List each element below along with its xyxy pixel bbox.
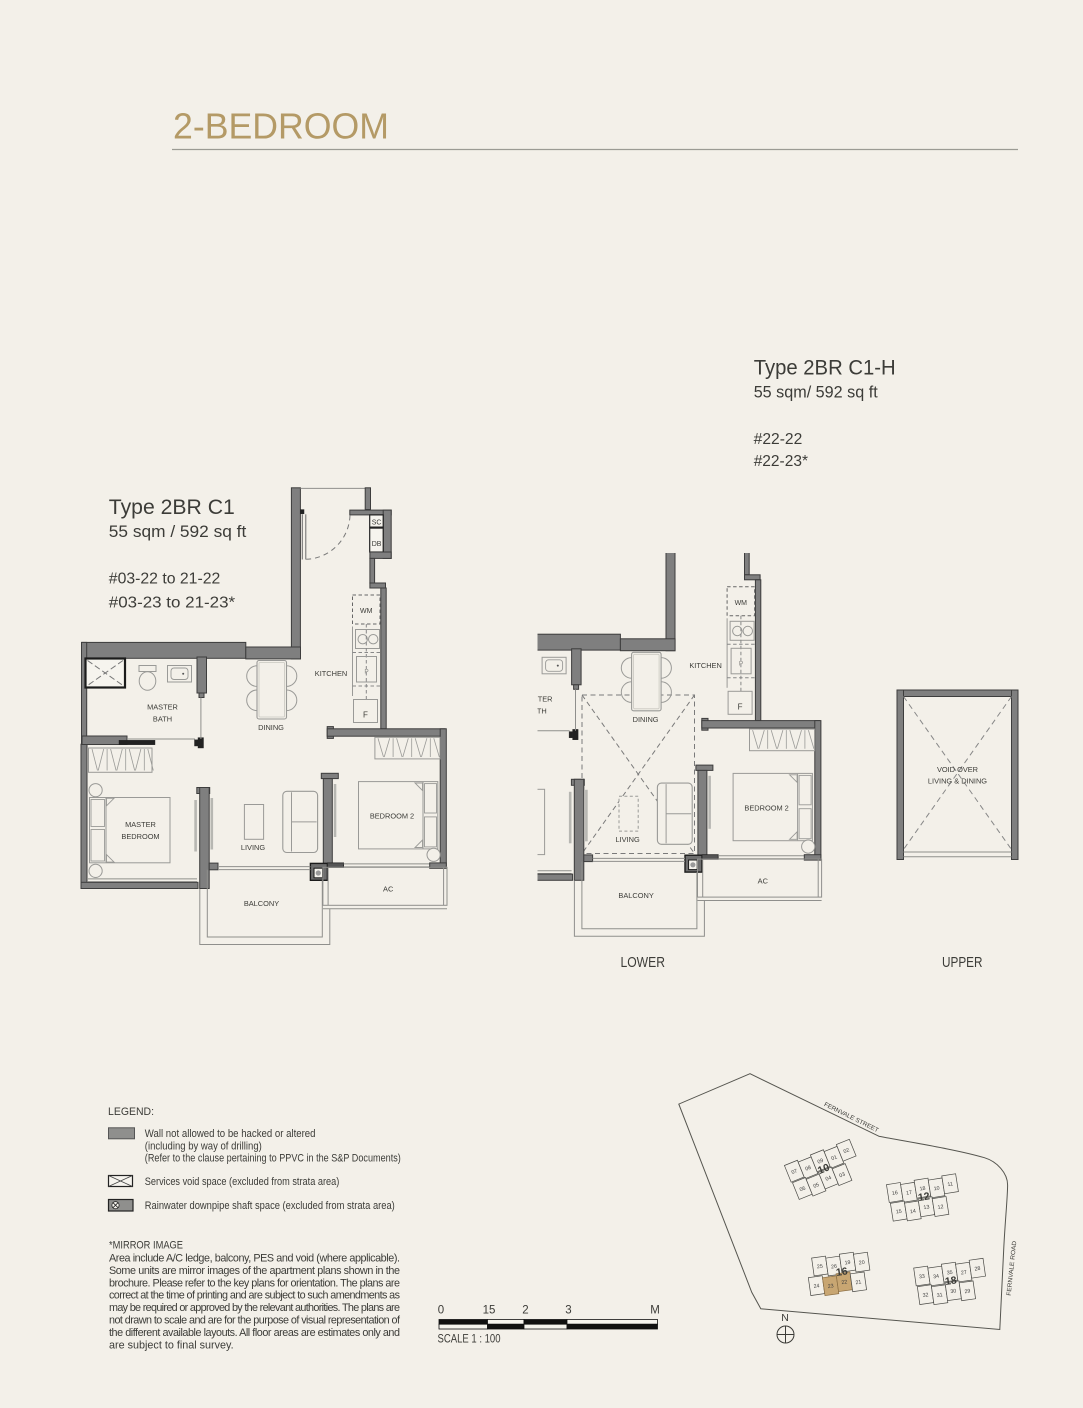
- svg-text:#22-23*: #22-23*: [754, 453, 808, 470]
- svg-text:14: 14: [910, 1208, 917, 1215]
- svg-text:28: 28: [974, 1266, 981, 1273]
- svg-text:Rainwater downpipe shaft space: Rainwater downpipe shaft space (excluded…: [145, 1200, 395, 1212]
- svg-text:23: 23: [827, 1283, 834, 1290]
- svg-text:16: 16: [892, 1190, 899, 1197]
- svg-text:55 sqm / 592 sq ft: 55 sqm / 592 sq ft: [109, 522, 247, 541]
- svg-text:12: 12: [937, 1204, 944, 1211]
- svg-text:LIVING: LIVING: [615, 835, 639, 844]
- svg-text:BALCONY: BALCONY: [618, 891, 653, 900]
- svg-text:SC: SC: [372, 520, 382, 527]
- svg-text:Wall not allowed to be hacked: Wall not allowed to be hacked or altered: [145, 1128, 316, 1140]
- svg-text:(Refer to the clause pertainin: (Refer to the clause pertaining to PPVC …: [145, 1153, 401, 1165]
- svg-text:25: 25: [817, 1264, 824, 1271]
- svg-text:N: N: [781, 1312, 789, 1324]
- svg-text:AC: AC: [383, 885, 394, 894]
- svg-text:LIVING: LIVING: [241, 843, 265, 852]
- svg-text:brochure. Please refer to the: brochure. Please refer to the key plans …: [109, 1277, 400, 1289]
- svg-text:27: 27: [961, 1270, 968, 1277]
- svg-text:KITCHEN: KITCHEN: [315, 669, 347, 678]
- svg-text:BEDROOM 2: BEDROOM 2: [744, 803, 788, 812]
- svg-text:16: 16: [835, 1265, 848, 1279]
- svg-text:Services void space (excluded: Services void space (excluded from strat…: [145, 1176, 339, 1188]
- svg-text:21: 21: [855, 1279, 862, 1286]
- svg-text:BEDROOM: BEDROOM: [121, 832, 159, 841]
- svg-text:KITCHEN: KITCHEN: [689, 661, 721, 670]
- svg-text:15: 15: [483, 1305, 496, 1317]
- svg-text:DINING: DINING: [633, 715, 659, 724]
- svg-text:*MIRROR IMAGE: *MIRROR IMAGE: [109, 1240, 183, 1252]
- svg-text:29: 29: [964, 1288, 971, 1295]
- svg-text:LOWER: LOWER: [621, 954, 666, 971]
- svg-text:VOID OVER: VOID OVER: [937, 765, 978, 774]
- svg-text:are subject to final survey.: are subject to final survey.: [109, 1339, 234, 1351]
- svg-text:LIVING & DINING: LIVING & DINING: [928, 777, 987, 786]
- svg-text:10: 10: [933, 1185, 940, 1192]
- svg-text:P: P: [364, 669, 368, 676]
- svg-text:P: P: [739, 660, 743, 667]
- svg-text:DB: DB: [372, 541, 382, 548]
- svg-text:24: 24: [813, 1283, 820, 1290]
- svg-text:2-BEDROOM: 2-BEDROOM: [173, 106, 389, 147]
- svg-text:0: 0: [438, 1305, 444, 1317]
- svg-text:BATH: BATH: [153, 715, 172, 724]
- svg-text:#03-23 to 21-23*: #03-23 to 21-23*: [109, 595, 235, 612]
- svg-text:17: 17: [906, 1190, 913, 1197]
- svg-text:F: F: [738, 702, 743, 711]
- svg-text:LEGEND:: LEGEND:: [108, 1106, 154, 1118]
- svg-text:AC: AC: [758, 876, 769, 885]
- svg-text:11: 11: [947, 1181, 953, 1188]
- svg-text:31: 31: [936, 1292, 943, 1299]
- svg-text:MASTER: MASTER: [147, 703, 178, 712]
- svg-text:WM: WM: [360, 608, 373, 615]
- svg-text:(including by way of drilling): (including by way of drilling): [145, 1140, 262, 1152]
- svg-text:2: 2: [522, 1305, 528, 1317]
- svg-text:#03-22 to 21-22: #03-22 to 21-22: [109, 571, 221, 588]
- svg-text:BEDROOM 2: BEDROOM 2: [370, 812, 414, 821]
- svg-text:Area include A/C ledge, balcon: Area include A/C ledge, balcony, PES and…: [109, 1253, 400, 1265]
- svg-text:12: 12: [917, 1190, 931, 1204]
- svg-text:DINING: DINING: [258, 723, 284, 732]
- svg-text:33: 33: [919, 1274, 926, 1281]
- svg-text:Type 2BR C1: Type 2BR C1: [109, 495, 235, 519]
- svg-text:32: 32: [922, 1292, 929, 1299]
- svg-text:15: 15: [896, 1209, 903, 1216]
- svg-text:18: 18: [944, 1274, 957, 1288]
- svg-text:M: M: [650, 1305, 660, 1317]
- svg-text:3: 3: [565, 1305, 571, 1317]
- svg-text:55 sqm/ 592 sq ft: 55 sqm/ 592 sq ft: [754, 383, 878, 402]
- svg-text:MASTER: MASTER: [125, 820, 156, 829]
- svg-text:correct at the time of printin: correct at the time of printing and are …: [109, 1290, 401, 1302]
- svg-text:13: 13: [923, 1204, 930, 1211]
- svg-text:20: 20: [858, 1260, 865, 1267]
- svg-text:Some units are mirror images o: Some units are mirror images of the apar…: [109, 1265, 400, 1277]
- svg-text:22: 22: [841, 1279, 848, 1286]
- svg-text:34: 34: [933, 1274, 940, 1281]
- svg-text:BALCONY: BALCONY: [244, 899, 279, 908]
- svg-text:may be required or approved by: may be required or approved by the relev…: [109, 1302, 400, 1314]
- svg-text:SCALE 1 : 100: SCALE 1 : 100: [438, 1334, 501, 1346]
- svg-text:WM: WM: [735, 600, 748, 607]
- svg-text:UPPER: UPPER: [942, 954, 983, 971]
- svg-text:30: 30: [950, 1288, 957, 1295]
- svg-text:#22-22: #22-22: [754, 431, 803, 448]
- svg-text:F: F: [363, 711, 368, 720]
- svg-text:the different available layout: the different available layouts. All flo…: [109, 1327, 400, 1339]
- svg-text:Type 2BR C1-H: Type 2BR C1-H: [754, 356, 896, 380]
- svg-text:not drawn to scale and are for: not drawn to scale and are for the purpo…: [109, 1315, 401, 1327]
